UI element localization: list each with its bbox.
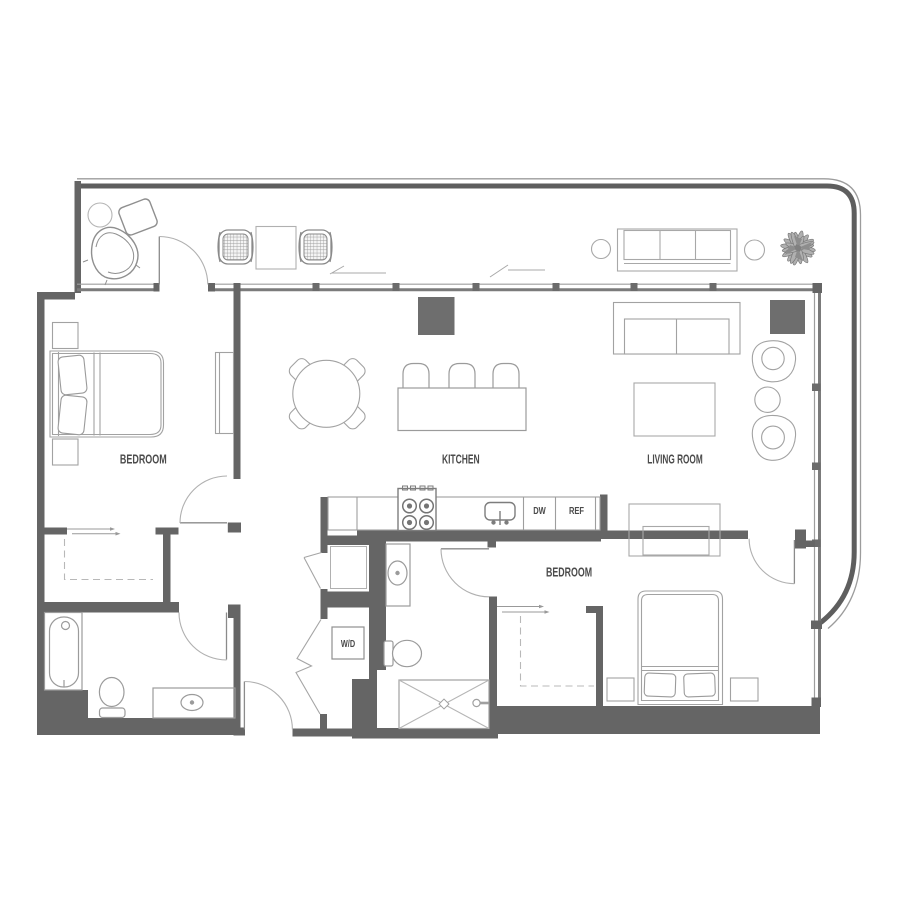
- svg-text:LIVING ROOM: LIVING ROOM: [647, 453, 703, 467]
- svg-text:KITCHEN: KITCHEN: [442, 453, 480, 467]
- svg-text:DW: DW: [533, 505, 546, 516]
- svg-text:W/D: W/D: [341, 638, 356, 650]
- svg-text:REF: REF: [569, 505, 584, 516]
- svg-text:BEDROOM: BEDROOM: [120, 453, 167, 467]
- svg-text:BEDROOM: BEDROOM: [546, 566, 592, 580]
